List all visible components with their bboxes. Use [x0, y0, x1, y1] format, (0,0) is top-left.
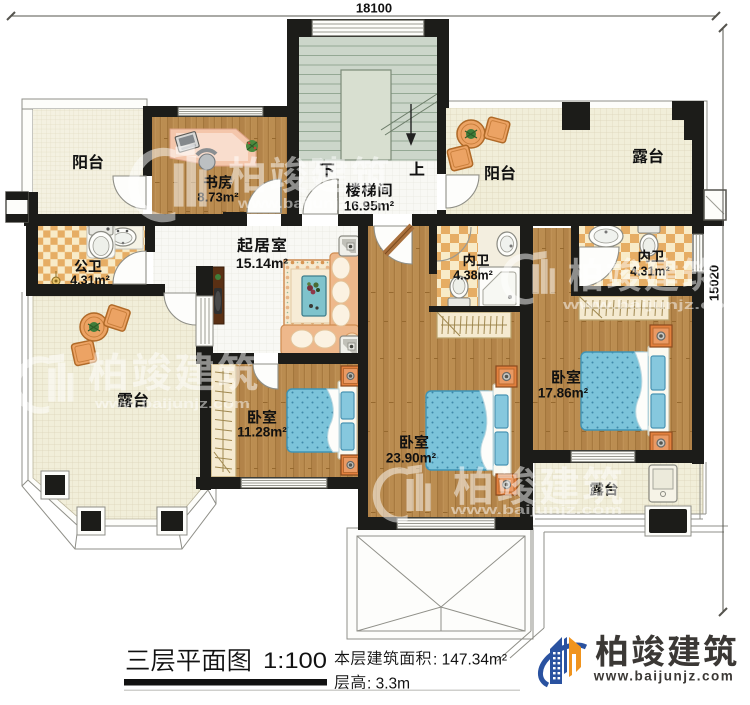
- svg-text:23.90m²: 23.90m²: [386, 451, 437, 466]
- svg-text:www.baijunjz.com: www.baijunjz.com: [561, 298, 743, 312]
- svg-text:4.38m²: 4.38m²: [453, 268, 493, 282]
- svg-text:17.86m²: 17.86m²: [538, 386, 589, 401]
- svg-text:: 147.34m²: : 147.34m²: [433, 651, 507, 668]
- svg-text:11.28m²: 11.28m²: [237, 425, 287, 440]
- svg-text:www.baijunjz.com: www.baijunjz.com: [237, 195, 388, 211]
- svg-text:: 3.3m: : 3.3m: [367, 675, 410, 692]
- svg-text:www.baijunjz.com: www.baijunjz.com: [94, 397, 250, 411]
- svg-text:18100: 18100: [356, 1, 392, 16]
- svg-text:www.baijunjz.com: www.baijunjz.com: [593, 669, 735, 684]
- svg-text:1:100: 1:100: [263, 648, 327, 673]
- svg-text:www.baijunjz.com: www.baijunjz.com: [449, 503, 622, 517]
- svg-text:15.14m²: 15.14m²: [236, 255, 288, 271]
